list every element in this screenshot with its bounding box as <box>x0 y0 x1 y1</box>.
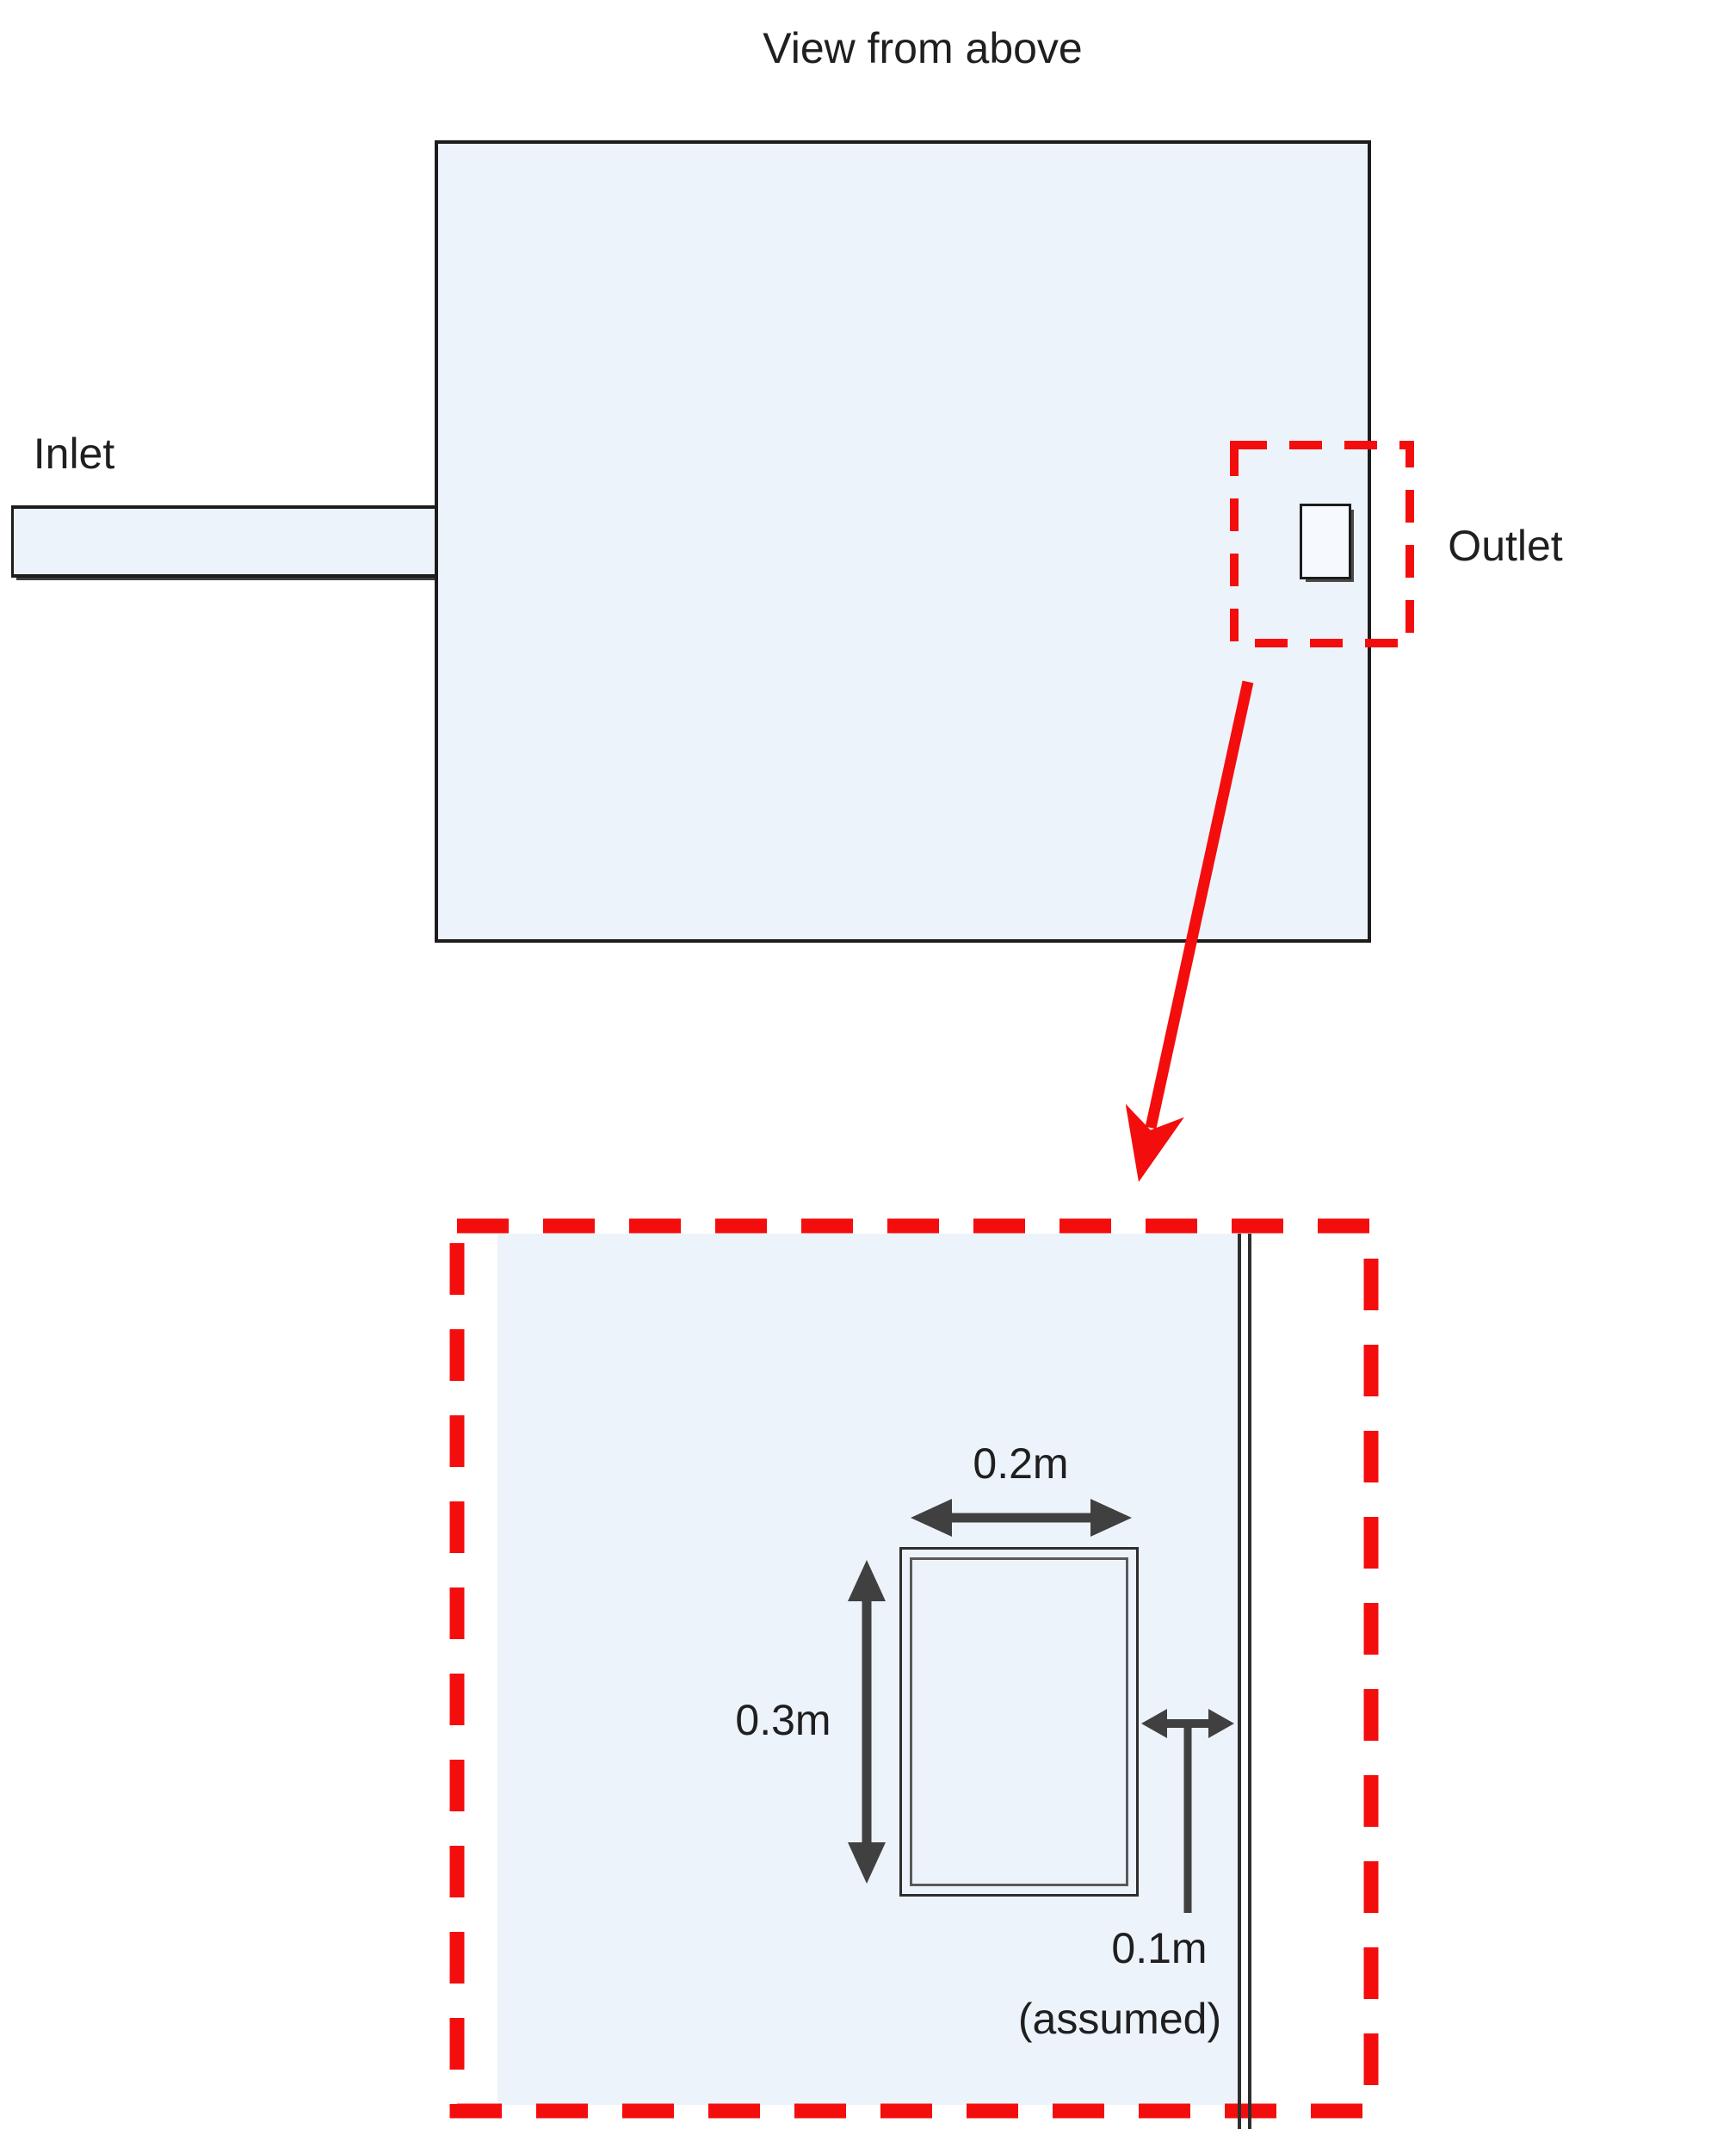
page-title: View from above <box>763 22 1082 76</box>
diagram-canvas: View from above Inlet Outlet 0.2m 0.3m 0… <box>0 0 1736 2129</box>
gap-assumed-note: (assumed) <box>1018 1992 1221 2046</box>
zoom-arrow-head <box>1126 1104 1184 1182</box>
outlet-opening-top-view <box>1300 504 1351 579</box>
outlet-label: Outlet <box>1448 519 1562 573</box>
tank-outline-top-view <box>435 140 1371 943</box>
width-dimension-label: 0.2m <box>973 1437 1068 1491</box>
gap-dimension-label: 0.1m <box>1111 1922 1207 1976</box>
inlet-pipe-shape <box>11 505 439 578</box>
height-dimension-label: 0.3m <box>735 1693 831 1748</box>
outlet-opening-detail-inner <box>910 1557 1128 1886</box>
inlet-label: Inlet <box>34 427 115 481</box>
